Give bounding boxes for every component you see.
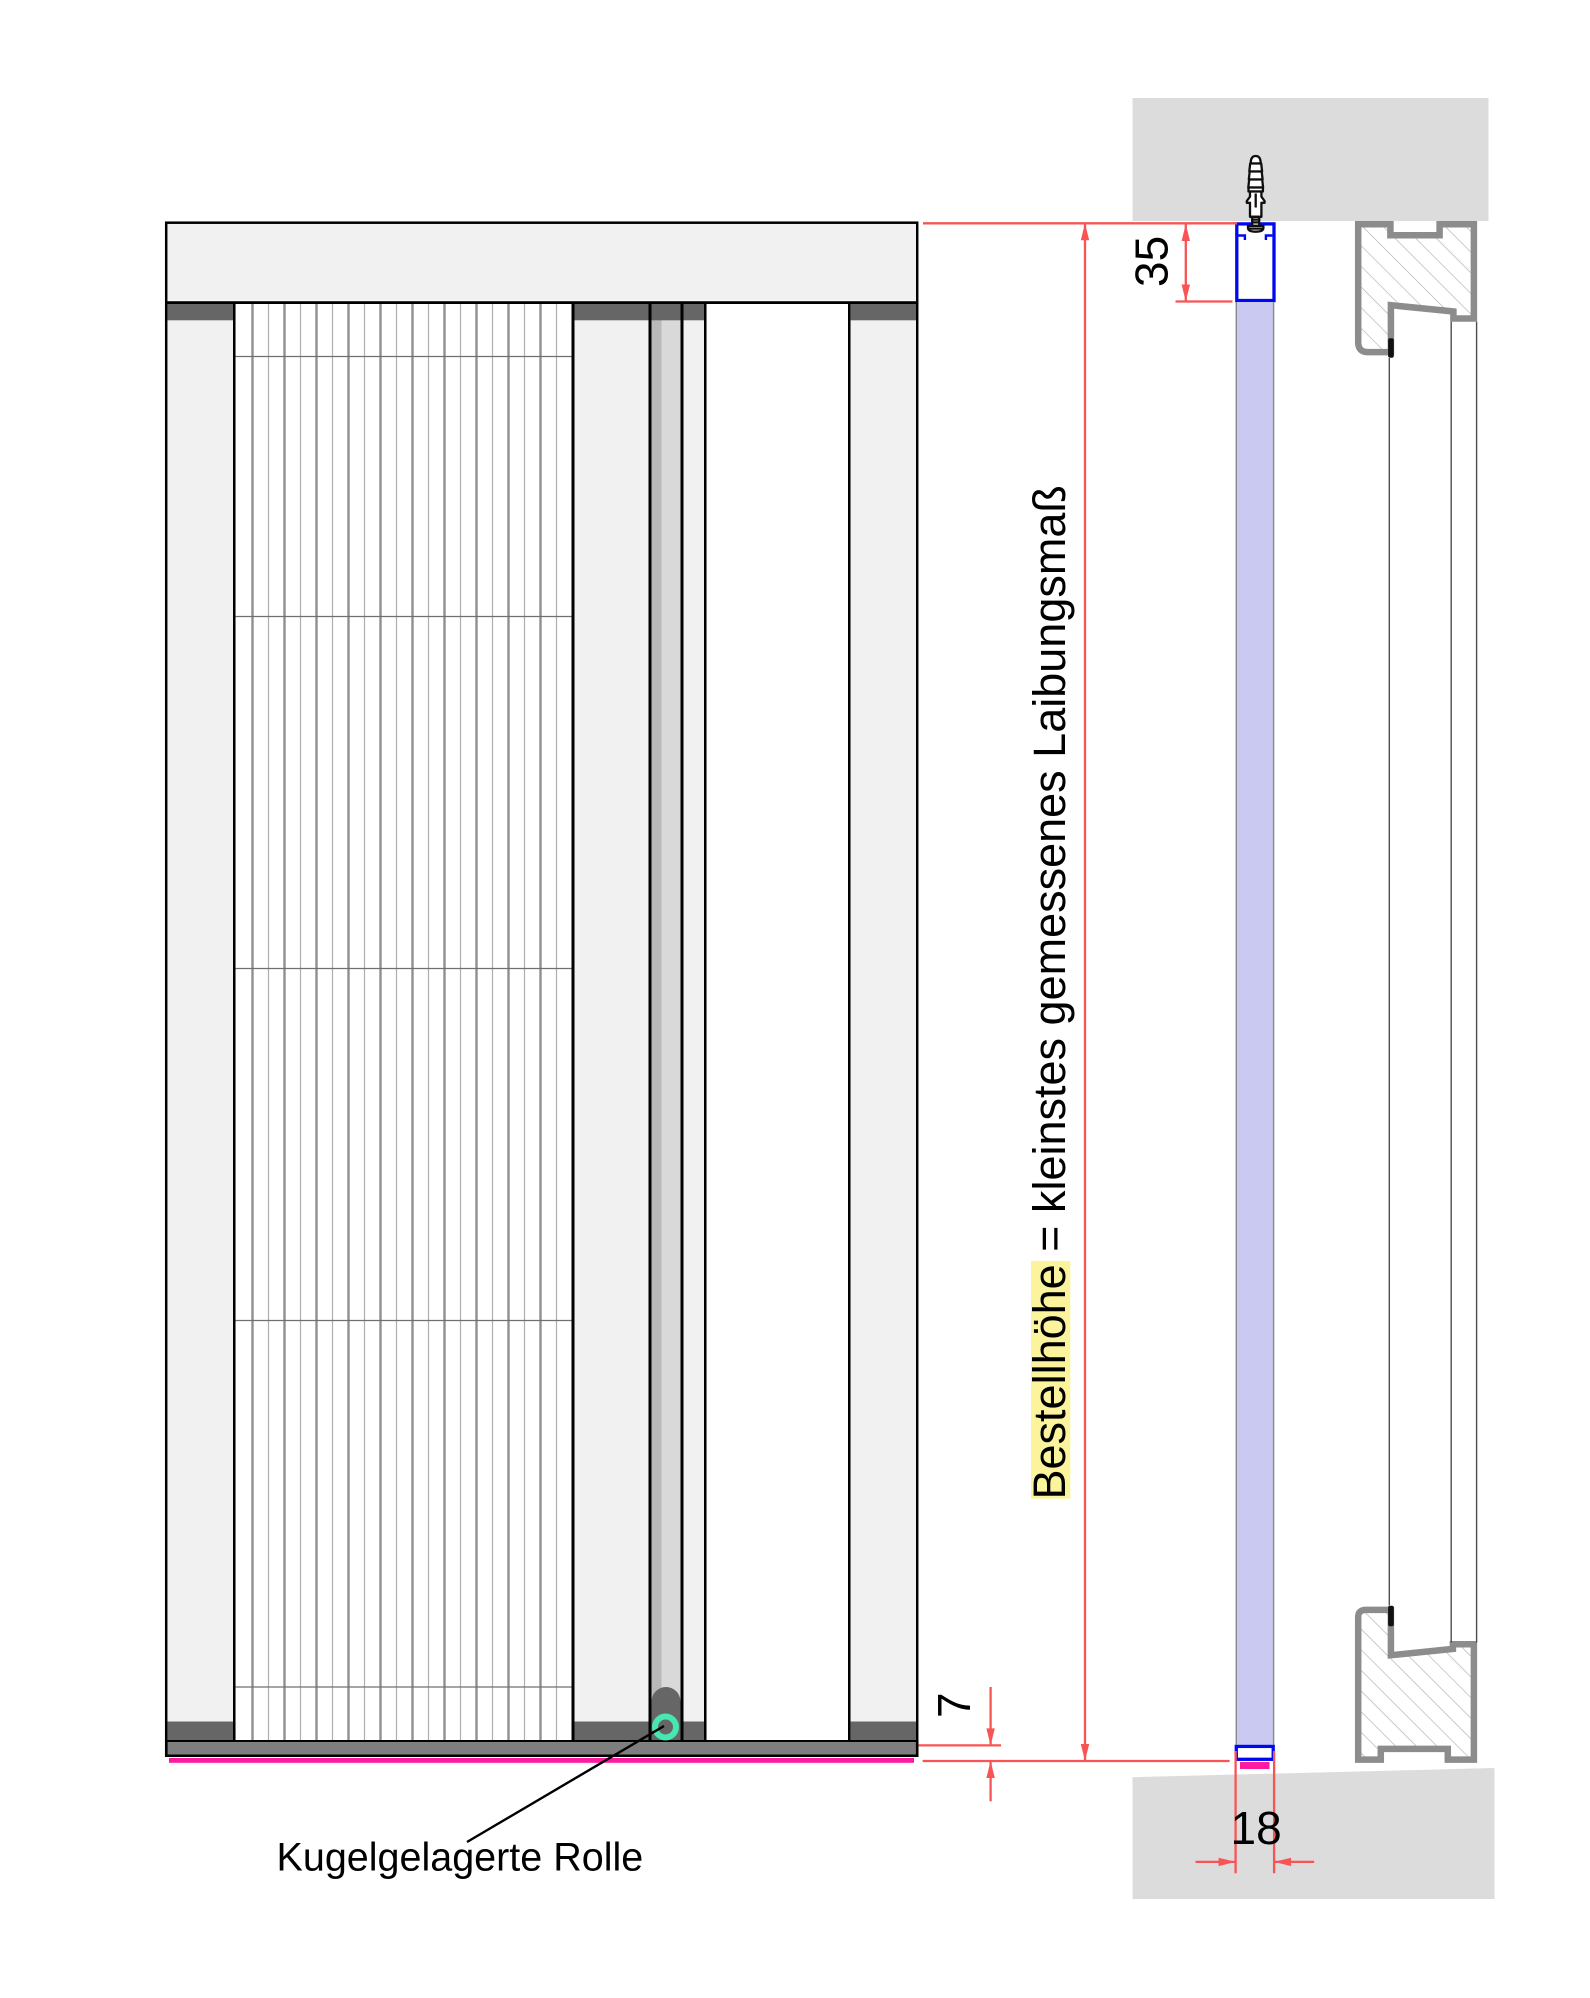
svg-text:Bestellhöhe = kleinstes gemess: Bestellhöhe = kleinstes gemessenes Laibu… xyxy=(1024,485,1075,1499)
svg-text:7: 7 xyxy=(928,1692,980,1718)
svg-text:35: 35 xyxy=(1126,236,1178,287)
svg-text:Kugelgelagerte Rolle: Kugelgelagerte Rolle xyxy=(277,1836,644,1880)
svg-text:18: 18 xyxy=(1231,1802,1282,1854)
